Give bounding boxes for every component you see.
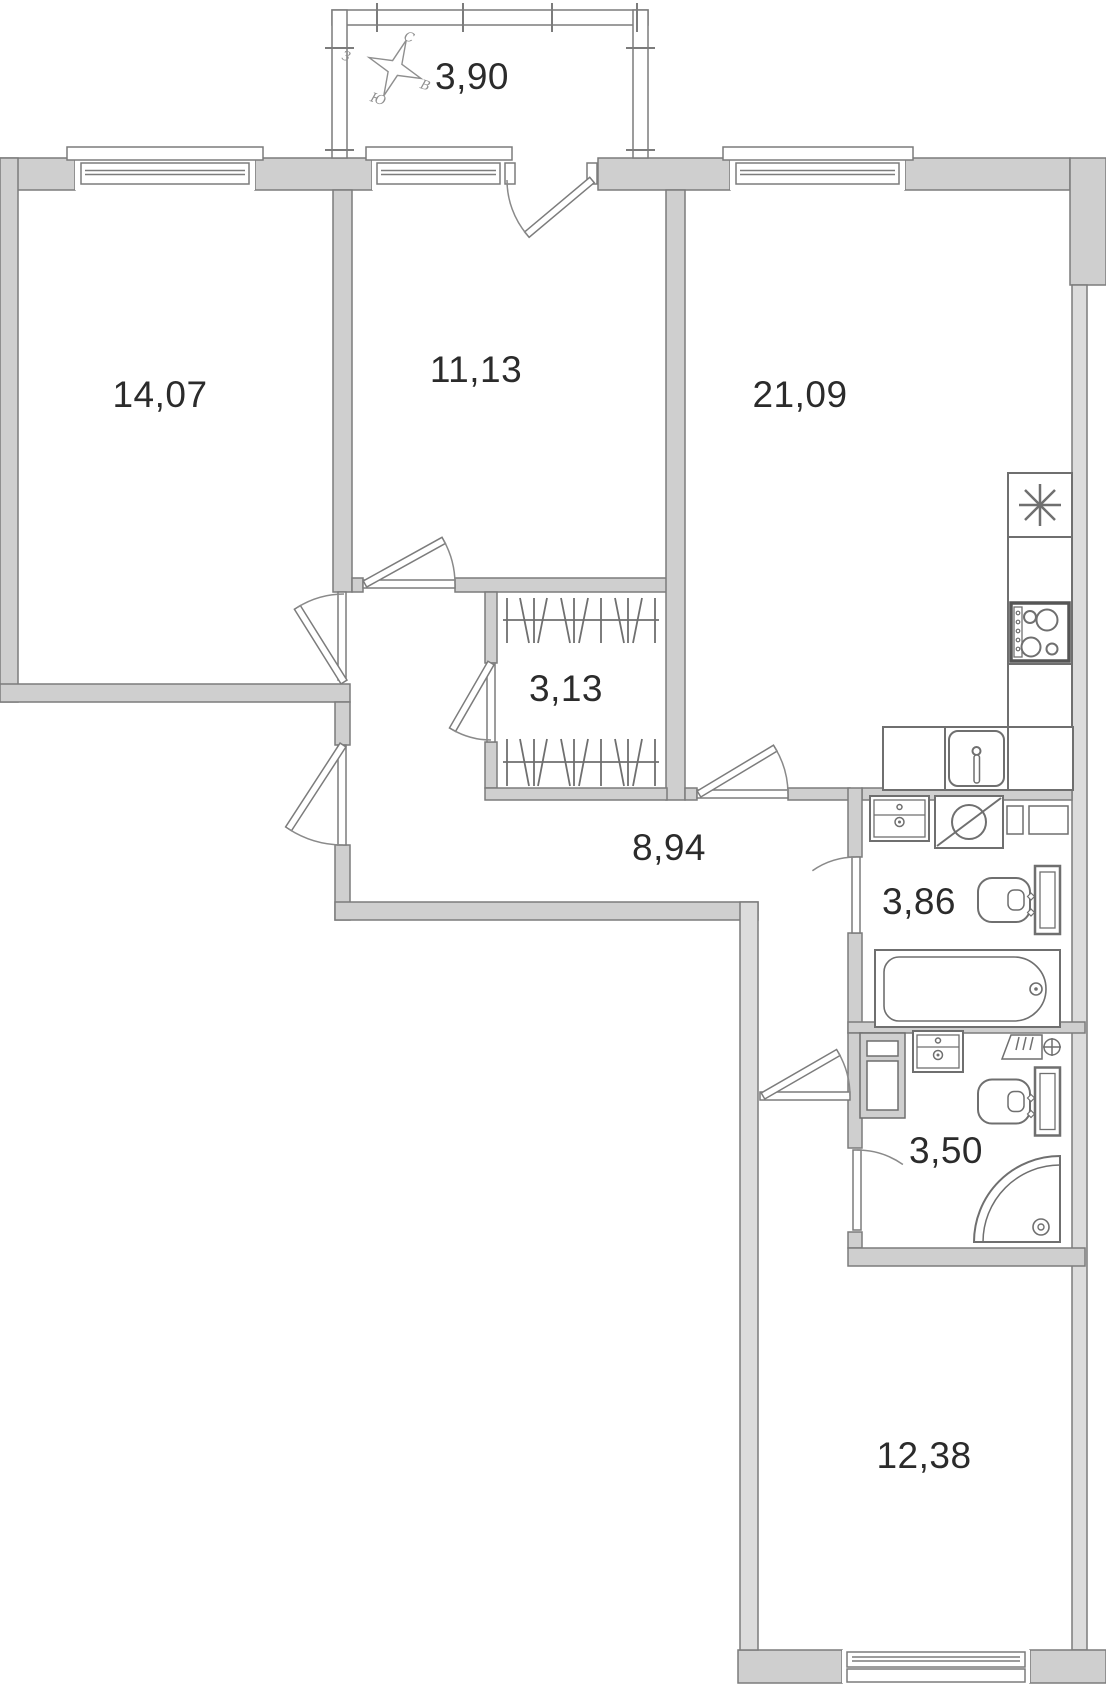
door-bathroom (812, 857, 860, 933)
vanity-sink-icon-2 (913, 1031, 963, 1072)
vent-shaft-icon (1007, 806, 1068, 834)
door-wardrobe (449, 661, 495, 742)
window-kitchen (723, 147, 913, 190)
shower-tray-icon (974, 1156, 1060, 1242)
door-bedroom-middle (363, 537, 455, 588)
door-bedroom-left (294, 592, 347, 684)
cabinet-icon (860, 1033, 905, 1118)
room-label-bedroom-left: 14,07 (112, 374, 207, 416)
kitchen-sink-icon (949, 731, 1004, 786)
kitchen-units (883, 473, 1073, 790)
toilet-icon (978, 866, 1060, 934)
kitchen-counter (883, 727, 1073, 790)
balcony-door (505, 163, 597, 237)
room-label-shower-room: 3,50 (909, 1130, 983, 1172)
towel-dryer-icon (1002, 1035, 1061, 1059)
room-label-balcony: 3,90 (435, 56, 509, 98)
stove-icon (1011, 603, 1069, 661)
room-label-bedroom-bottom: 12,38 (876, 1435, 971, 1477)
door-shower-room (853, 1150, 903, 1230)
door-kitchen (697, 745, 788, 798)
washing-machine-icon (935, 796, 1003, 848)
compass-rose-icon (358, 30, 432, 107)
room-label-bathroom: 3,86 (882, 881, 956, 923)
floor-plan: 3,90 14,07 11,13 21,09 3,13 8,94 3,86 3,… (0, 0, 1106, 1686)
room-label-hallway: 8,94 (632, 827, 706, 869)
window-bedroom-left (67, 147, 263, 190)
bathtub-icon (875, 950, 1060, 1027)
window-balcony-unit (366, 147, 512, 190)
vanity-sink-icon (870, 796, 929, 841)
door-bedroom-bottom (760, 1049, 850, 1100)
window-bedroom-bottom (842, 1650, 1030, 1683)
fridge-icon (1019, 484, 1061, 526)
room-label-bedroom-middle: 11,13 (430, 349, 522, 391)
room-label-wardrobe: 3,13 (529, 668, 603, 710)
entrance-door (286, 743, 346, 845)
room-label-kitchen: 21,09 (752, 374, 847, 416)
